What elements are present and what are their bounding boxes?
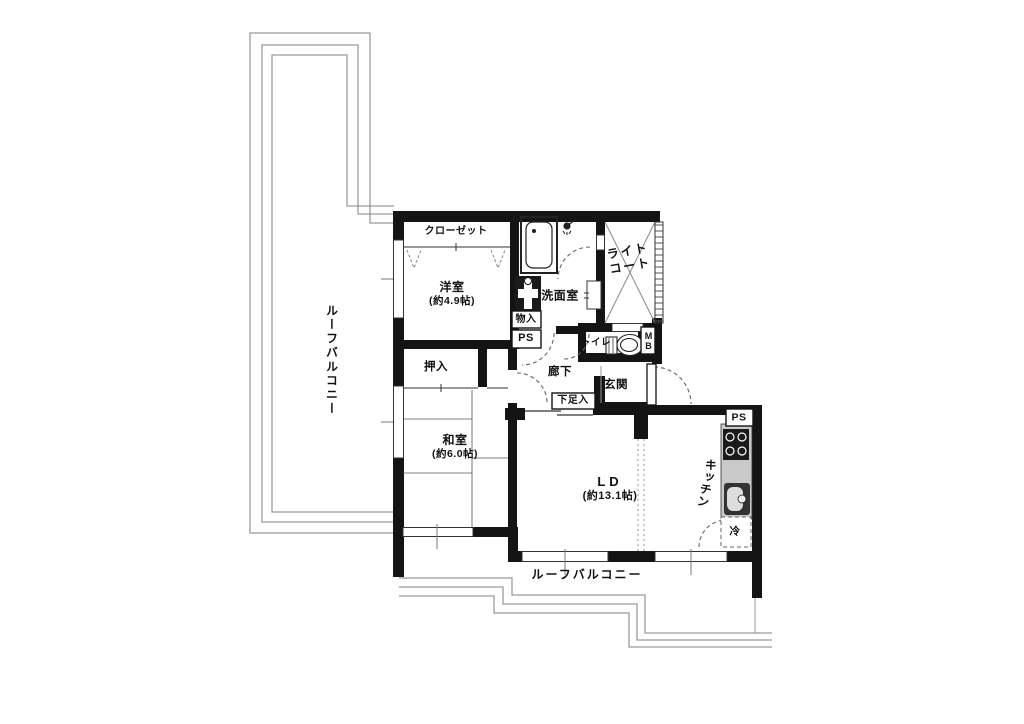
living-dining-name: LD — [583, 474, 638, 490]
entry-door — [647, 364, 656, 405]
label-refrigerator: 冷 — [730, 525, 741, 538]
japanese-room-size: (約6.0帖) — [432, 448, 478, 461]
bottom-roof-balcony-railing — [399, 578, 772, 647]
japanese-room-name: 和室 — [432, 433, 478, 448]
label-roof-balcony-left: ルーフバルコニー — [324, 304, 339, 416]
floorplan-svg — [0, 0, 1024, 724]
washitsu-door-opening — [508, 370, 517, 403]
label-toilet: トイレ — [581, 337, 611, 349]
label-oshiire: 押入 — [424, 360, 448, 374]
light-court-railing — [655, 222, 663, 323]
hanger-icons — [407, 250, 505, 268]
label-japanese-room: 和室 (約6.0帖) — [432, 433, 478, 461]
label-entrance: 玄関 — [604, 378, 628, 392]
toilet-icon — [606, 335, 643, 356]
western-room-name: 洋室 — [429, 280, 475, 295]
living-dining-size: (約13.1帖) — [583, 490, 638, 504]
label-corridor: 廊下 — [548, 365, 572, 379]
ld-partition-dotted — [638, 439, 644, 551]
label-washroom: 洗面室 — [541, 289, 579, 304]
bathtub-icon — [521, 217, 557, 273]
label-shoe-cabinet: 下足入 — [557, 395, 589, 408]
western-room-size: (約4.9帖) — [429, 295, 475, 308]
vanity-icon — [584, 281, 601, 309]
sink-icon — [724, 483, 750, 515]
label-western-room: 洋室 (約4.9帖) — [429, 280, 475, 308]
sliding-door — [525, 411, 593, 415]
label-pipe-space-2: PS — [731, 411, 746, 424]
stove-icon — [723, 429, 749, 460]
floorplan-canvas: ルーフバルコニー クローゼット 洋室 (約4.9帖) 洗面室 ライト コート 物… — [0, 0, 1024, 724]
left-roof-balcony-railing — [250, 33, 394, 533]
label-roof-balcony-bottom: ルーフバルコニー — [531, 568, 642, 583]
label-closet: クローゼット — [425, 226, 488, 239]
label-pipe-space-1: PS — [518, 332, 534, 346]
label-living-dining: LD (約13.1帖) — [583, 474, 638, 504]
label-meter-box: MB — [644, 331, 653, 351]
label-storage-small: 物入 — [516, 314, 537, 327]
washing-machine-icon — [515, 276, 541, 312]
